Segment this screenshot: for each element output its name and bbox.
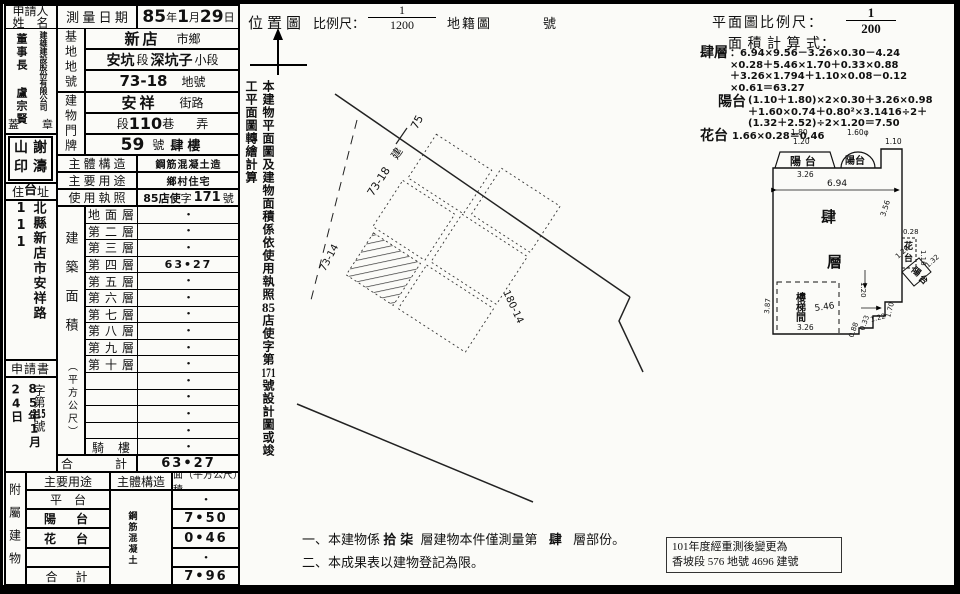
building-street-row: 安祥 街路 [85,92,240,113]
floor-row-label: 第 九 層 [86,340,138,357]
vertical-note-num: 85 [261,301,276,314]
receipt-no-suffix: 號 [32,420,46,432]
note-2: 二、本成果表以建物登記為限。 [302,552,484,571]
survey-date-label: 測 量 日 期 [57,4,137,29]
annex-total-value-text: 7•96 [184,569,227,584]
floor-area-side-1: 建築面積 [62,231,81,347]
structure-value: 鋼筋混凝土造 [137,155,240,172]
floor-row-label [86,423,138,440]
annex-value-text: 0•46 [184,531,227,546]
lot-number-label: 73-18 [365,165,393,199]
building-street-unit: 街路 [180,94,204,111]
survey-month: 1 [177,7,189,27]
annex-row-value: 7•50 [172,509,240,528]
structure-label-text: 主 體 構 造 [68,155,125,172]
resurvey-remark-line2: 香坡段 576 地號 4696 建號 [672,555,836,570]
site-subsection-hw: 深坑子 [151,50,193,70]
annex-total-text: 合 計 [45,568,90,585]
survey-day: 29 [200,7,224,27]
scale-denominator: 1200 [390,19,414,31]
applicant-name-label: 申請人 姓 名 [4,4,57,29]
vertical-note: 本建物平面圖及建物面積係依使用執照85店使字第171號設計圖或竣工平面圖轉繪計算 [243,80,277,460]
license-label: 使 用 執 照 [57,189,137,206]
annex-row-value: • [172,548,240,567]
vertical-note-part: 店使字第 [261,314,275,366]
note-1-prefix: 一、 [302,532,328,547]
license-no-unit: 號 [223,190,234,206]
seal-cell: 山 謝 印 濤 [4,134,57,183]
floor-area-table: 地 面 層• 第 二 層• 第 三 層• 第 四 層63•27 第 五 層• 第… [85,206,240,455]
resurvey-remark-line1: 101年度經重測後變更為 [672,540,836,555]
dim-label: 3.26 [797,170,814,179]
floor-area-side-label: 建築面積 （平方公尺） [57,206,85,455]
site-city-row: 新店 市鄉 [85,28,240,49]
main-floor-label-2: 層 [827,253,842,271]
survey-year: 85 [142,7,166,27]
floor-row-label [86,406,138,423]
building-mark-label: 建 [388,145,406,162]
dim-label: 1.20 [793,137,810,146]
note-1-storeys-hw: 拾柒 [383,533,417,548]
floor-row-value: • [138,423,239,440]
floor-row-value: • [138,323,239,340]
floor-row-label [86,373,138,390]
dim-label: 1.10 [885,137,902,146]
floor-plan-drawing: 陽 台 陽台 花 台 陽 台 肆 層 樓梯間 1.80 1.20 3.26 1.… [735,122,960,372]
survey-date-value: 85年 1月 29日 [137,4,240,29]
receipt-no-value: 215 [32,408,46,420]
scale-fraction: 1 1200 [368,4,436,31]
site-city-suffix: 市鄉 [177,30,201,47]
note-1-text: 本建物係 [328,532,380,547]
floor-area-side-2: （平方公尺） [64,361,79,439]
seal-label-right: 章 [42,116,53,132]
floor-row-label: 第 四 層 [86,257,138,274]
site-lot-number: 73-18 [120,72,168,90]
floor-row-value: • [138,240,239,257]
seal-char: 謝 [31,140,49,158]
address-value-cell: 北縣新店市安祥路111 [4,200,57,360]
plan-scale-fraction: 1 200 [846,6,896,35]
formula-line: ＋1.60×0.74＋0.80²×3.1416÷2＋ [748,107,927,118]
cadastral-map-label: 地籍圖 [447,13,492,32]
floor-row-value: • [138,356,239,373]
application-doc-label: 申請書 [11,360,50,377]
application-doc-cell: 申請書 [4,360,57,377]
scale-numerator: 1 [399,4,405,16]
house-number-hw: 59 [121,135,145,155]
usage-value: 鄉村住宅 [137,172,240,189]
dim-label: 0.88 [847,321,860,338]
floor-row-value: • [138,290,239,307]
note-1-floor-hw: 肆 [549,533,562,548]
applicant-name-cell: 董事長 盧宗賢 建雄建設股份有限公司 蓋 章 [4,28,57,134]
formula-line: ：6.94×9.56－3.26×0.30－4.24 [730,48,900,59]
site-lot-side-label: 基地地號 [57,28,85,92]
annex-header-usage: 主要用途 [26,472,110,490]
road-line-bottom [297,404,533,502]
day-unit: 日 [224,9,235,25]
seal-label-left: 蓋 [8,116,19,132]
main-floor-label-1: 肆 [821,208,836,226]
dim-label: 5.46 [814,301,836,314]
annex-value-text: • [204,494,208,506]
structure-label: 主 體 構 造 [57,155,137,172]
road-bend [619,297,643,372]
subject-building-hatched [346,233,420,305]
formula-floor4: 肆層 ：6.94×9.56－3.26×0.30－4.24 ×0.28＋5.46×… [700,48,956,94]
floor-row-value: • [138,373,239,390]
license-label-text: 使 用 執 照 [68,189,125,206]
lot-number-label: 75 [408,113,426,131]
usage-label-text: 主 要 用 途 [68,172,125,189]
site-section-hw: 安坑 [106,50,134,70]
structure-value-text: 鋼筋混凝土造 [156,156,222,171]
annex-value-text: 7•50 [184,511,227,526]
annex-label-text: 平 台 [50,491,86,508]
total-label-text: 合 計 [61,455,133,472]
annex-side-label: 附屬建物 [4,472,26,586]
dim-label: 0.28 [903,228,919,236]
applicant-person-name: 董事長 盧宗賢 [13,33,29,126]
plan-scale-denominator: 200 [861,22,881,35]
address-label-cell: 住 台 址 [4,183,57,200]
personal-seal: 山 謝 印 濤 [8,136,53,181]
total-value: 63•27 [137,455,240,472]
annex-structure-cell: 鋼筋混凝土 [110,490,172,586]
annex-header-area: 面（平方公尺）積 [172,472,240,490]
dim-label: 1.70 [884,301,896,318]
annex-h2-text: 主體構造 [117,473,165,490]
annex-row-label: 陽 台 [26,509,110,528]
location-map-drawing: 73-18 建 75 73-14 180-14 [295,72,665,522]
usage-label: 主 要 用 途 [57,172,137,189]
month-unit: 月 [189,9,200,25]
annex-label-text: 花 台 [44,530,92,547]
floor-row-label [86,390,138,407]
year-unit: 年 [166,9,177,25]
seal-char: 濤 [31,159,49,177]
plan-scale-numerator: 1 [868,6,875,19]
lane-unit: 巷 [162,115,174,132]
floor-row-value: • [138,340,239,357]
usage-value-text: 鄉村住宅 [167,173,211,188]
license-word: 字 [181,190,192,206]
dim-label: 0.33 [858,314,871,331]
applicant-label-line1: 申請人 [12,5,48,17]
building-street-hw: 安祥 [121,92,157,113]
vertical-note-num: 171 [261,366,276,379]
applicant-label-line2: 姓 名 [12,17,48,29]
receipt-stamp-cell: 85年1月24日 字第215號 [4,377,57,472]
note-1: 一、本建物係 拾柒 層建物本件僅測量第 肆 層部份。 [302,529,625,548]
dim-label: 3.87 [763,298,772,314]
dim-label: 1.22 [869,312,886,324]
scale-label: 比例尺： [313,13,365,32]
floor-row-label: 第 十 層 [86,356,138,373]
building-address-side-label: 建物門牌 [57,92,85,155]
arcade-row-value: • [138,439,239,456]
vertical-note-part: 本建物平面圖及建物面積係依使用執照 [261,80,275,301]
note-2-prefix: 二、 [302,555,328,570]
seal-char: 印 [12,159,30,177]
floor-row-label: 第 五 層 [86,273,138,290]
survey-form-page: 申請人 姓 名 董事長 盧宗賢 建雄建設股份有限公司 蓋 章 山 謝 印 濤 住… [0,0,960,594]
section-unit: 段 [117,115,129,132]
annex-side-text: 附屬建物 [7,483,24,575]
site-lot-unit: 地號 [181,73,205,90]
total-value-text: 63•27 [161,456,216,471]
arcade-row-label: 騎 樓 [86,439,138,456]
floor-row-value: • [138,390,239,407]
annex-total-label: 合 計 [26,567,110,586]
annex-total-value: 7•96 [172,567,240,586]
floor-row-label: 第 七 層 [86,307,138,324]
site-section-unit: 段 [136,51,148,68]
dim-label: 1.20 [859,282,867,298]
formula-floor4-name: 肆層 [700,48,728,94]
building-address-side-text: 建物門牌 [63,94,80,154]
plan-scale-label: 平面圖比例尺： [712,12,824,32]
receipt-no-prefix: 字第 [32,384,46,408]
formula-line: ×0.61＝63.27 [730,83,805,94]
floor-row-value: • [138,406,239,423]
dim-label: 6.94 [827,179,847,189]
main-floor-outline [773,149,902,334]
annex-row-label [26,548,110,567]
floor-designation-hw: 肆樓 [170,135,204,154]
floor-row-label: 第 六 層 [86,290,138,307]
address-label-pre: 住 [12,183,24,200]
license-value: 85店使 字 171 號 [137,189,240,206]
annex-label-text: 陽 台 [44,510,92,527]
number-unit: 號 [152,136,164,153]
applicant-company-name: 建雄建設股份有限公司 [38,31,49,111]
site-lot-number-row: 73-18 地號 [85,70,240,92]
lot-number-label: 180-14 [500,289,525,326]
floor-row-value: • [138,273,239,290]
annex-h1-text: 主要用途 [44,473,92,490]
lane-number-hw: 110 [129,114,162,133]
dim-label: 1.60φ [847,128,869,137]
note-2-text: 本成果表以建物登記為限。 [328,555,484,570]
floor-row-label: 第 八 層 [86,323,138,340]
map-number-label: 號 [543,13,556,32]
site-section-row: 安坑 段 深坑子 小段 [85,49,240,70]
note-1-text: 層部份。 [573,532,625,547]
formula-flowerbed-name: 花台 [700,131,728,143]
annex-structure-text: 鋼筋混凝土 [126,511,139,566]
site-subsection-unit: 小段 [195,51,219,68]
round-balcony-label: 陽台 [845,154,865,167]
receipt-number: 字第215號 [31,384,48,432]
address-label-post: 址 [37,183,49,200]
annex-value-text: • [204,552,208,564]
site-city-hw: 新店 [124,28,160,49]
building-lane-row: 段 110 巷 弄 [85,113,240,134]
formula-line: ×0.28＋5.46×1.70＋0.33×0.88 [730,60,899,71]
floor-row-label: 第 三 層 [86,240,138,257]
address-overlay-hw: 台 [24,183,37,198]
formula-line: ＋3.26×1.794＋1.10×0.08－0.12 [730,71,907,82]
annex-row-label: 平 台 [26,490,110,509]
north-arrow-icon [245,26,315,76]
annex-row-label: 花 台 [26,528,110,548]
resurvey-remark-box: 101年度經重測後變更為 香坡段 576 地號 4696 建號 [666,537,842,573]
floor-row-value: • [138,207,239,224]
floor-row-label: 地 面 層 [86,207,138,224]
annex-header-structure: 主體構造 [110,472,172,490]
left-balcony-label: 陽 台 [790,154,816,168]
lot-number-label: 73-14 [318,243,341,274]
site-lot-side-text: 基地地號 [63,30,80,90]
stairwell-label: 樓梯間 [794,291,806,323]
floor-row-label: 第 二 層 [86,224,138,241]
dim-label: 3.56 [878,199,892,218]
note-1-text: 層建物本件僅測量第 [421,532,538,547]
alley-unit: 弄 [196,115,208,132]
formula-line: (1.10＋1.80)×2×0.30＋3.26×0.98 [748,95,933,106]
license-number: 171 [194,190,221,205]
floor-4-area-value: 63•27 [138,257,239,274]
annex-row-value: 0•46 [172,528,240,548]
floor-row-value: • [138,307,239,324]
building-number-row: 59 號 肆樓 [85,134,240,155]
annex-h3-text: 面（平方公尺）積 [173,472,239,490]
address-value: 北縣新店市安祥路111 [14,201,48,359]
total-label: 合 計 [57,455,137,472]
dim-label: 3.26 [797,323,814,332]
floor-row-value: • [138,224,239,241]
survey-date-label-text: 測 量 日 期 [66,7,128,26]
seal-char: 山 [12,140,30,158]
dim-label: 1.80 [791,128,808,137]
annex-row-value: • [172,490,240,509]
license-hw-prefix: 85店使 [143,190,180,206]
